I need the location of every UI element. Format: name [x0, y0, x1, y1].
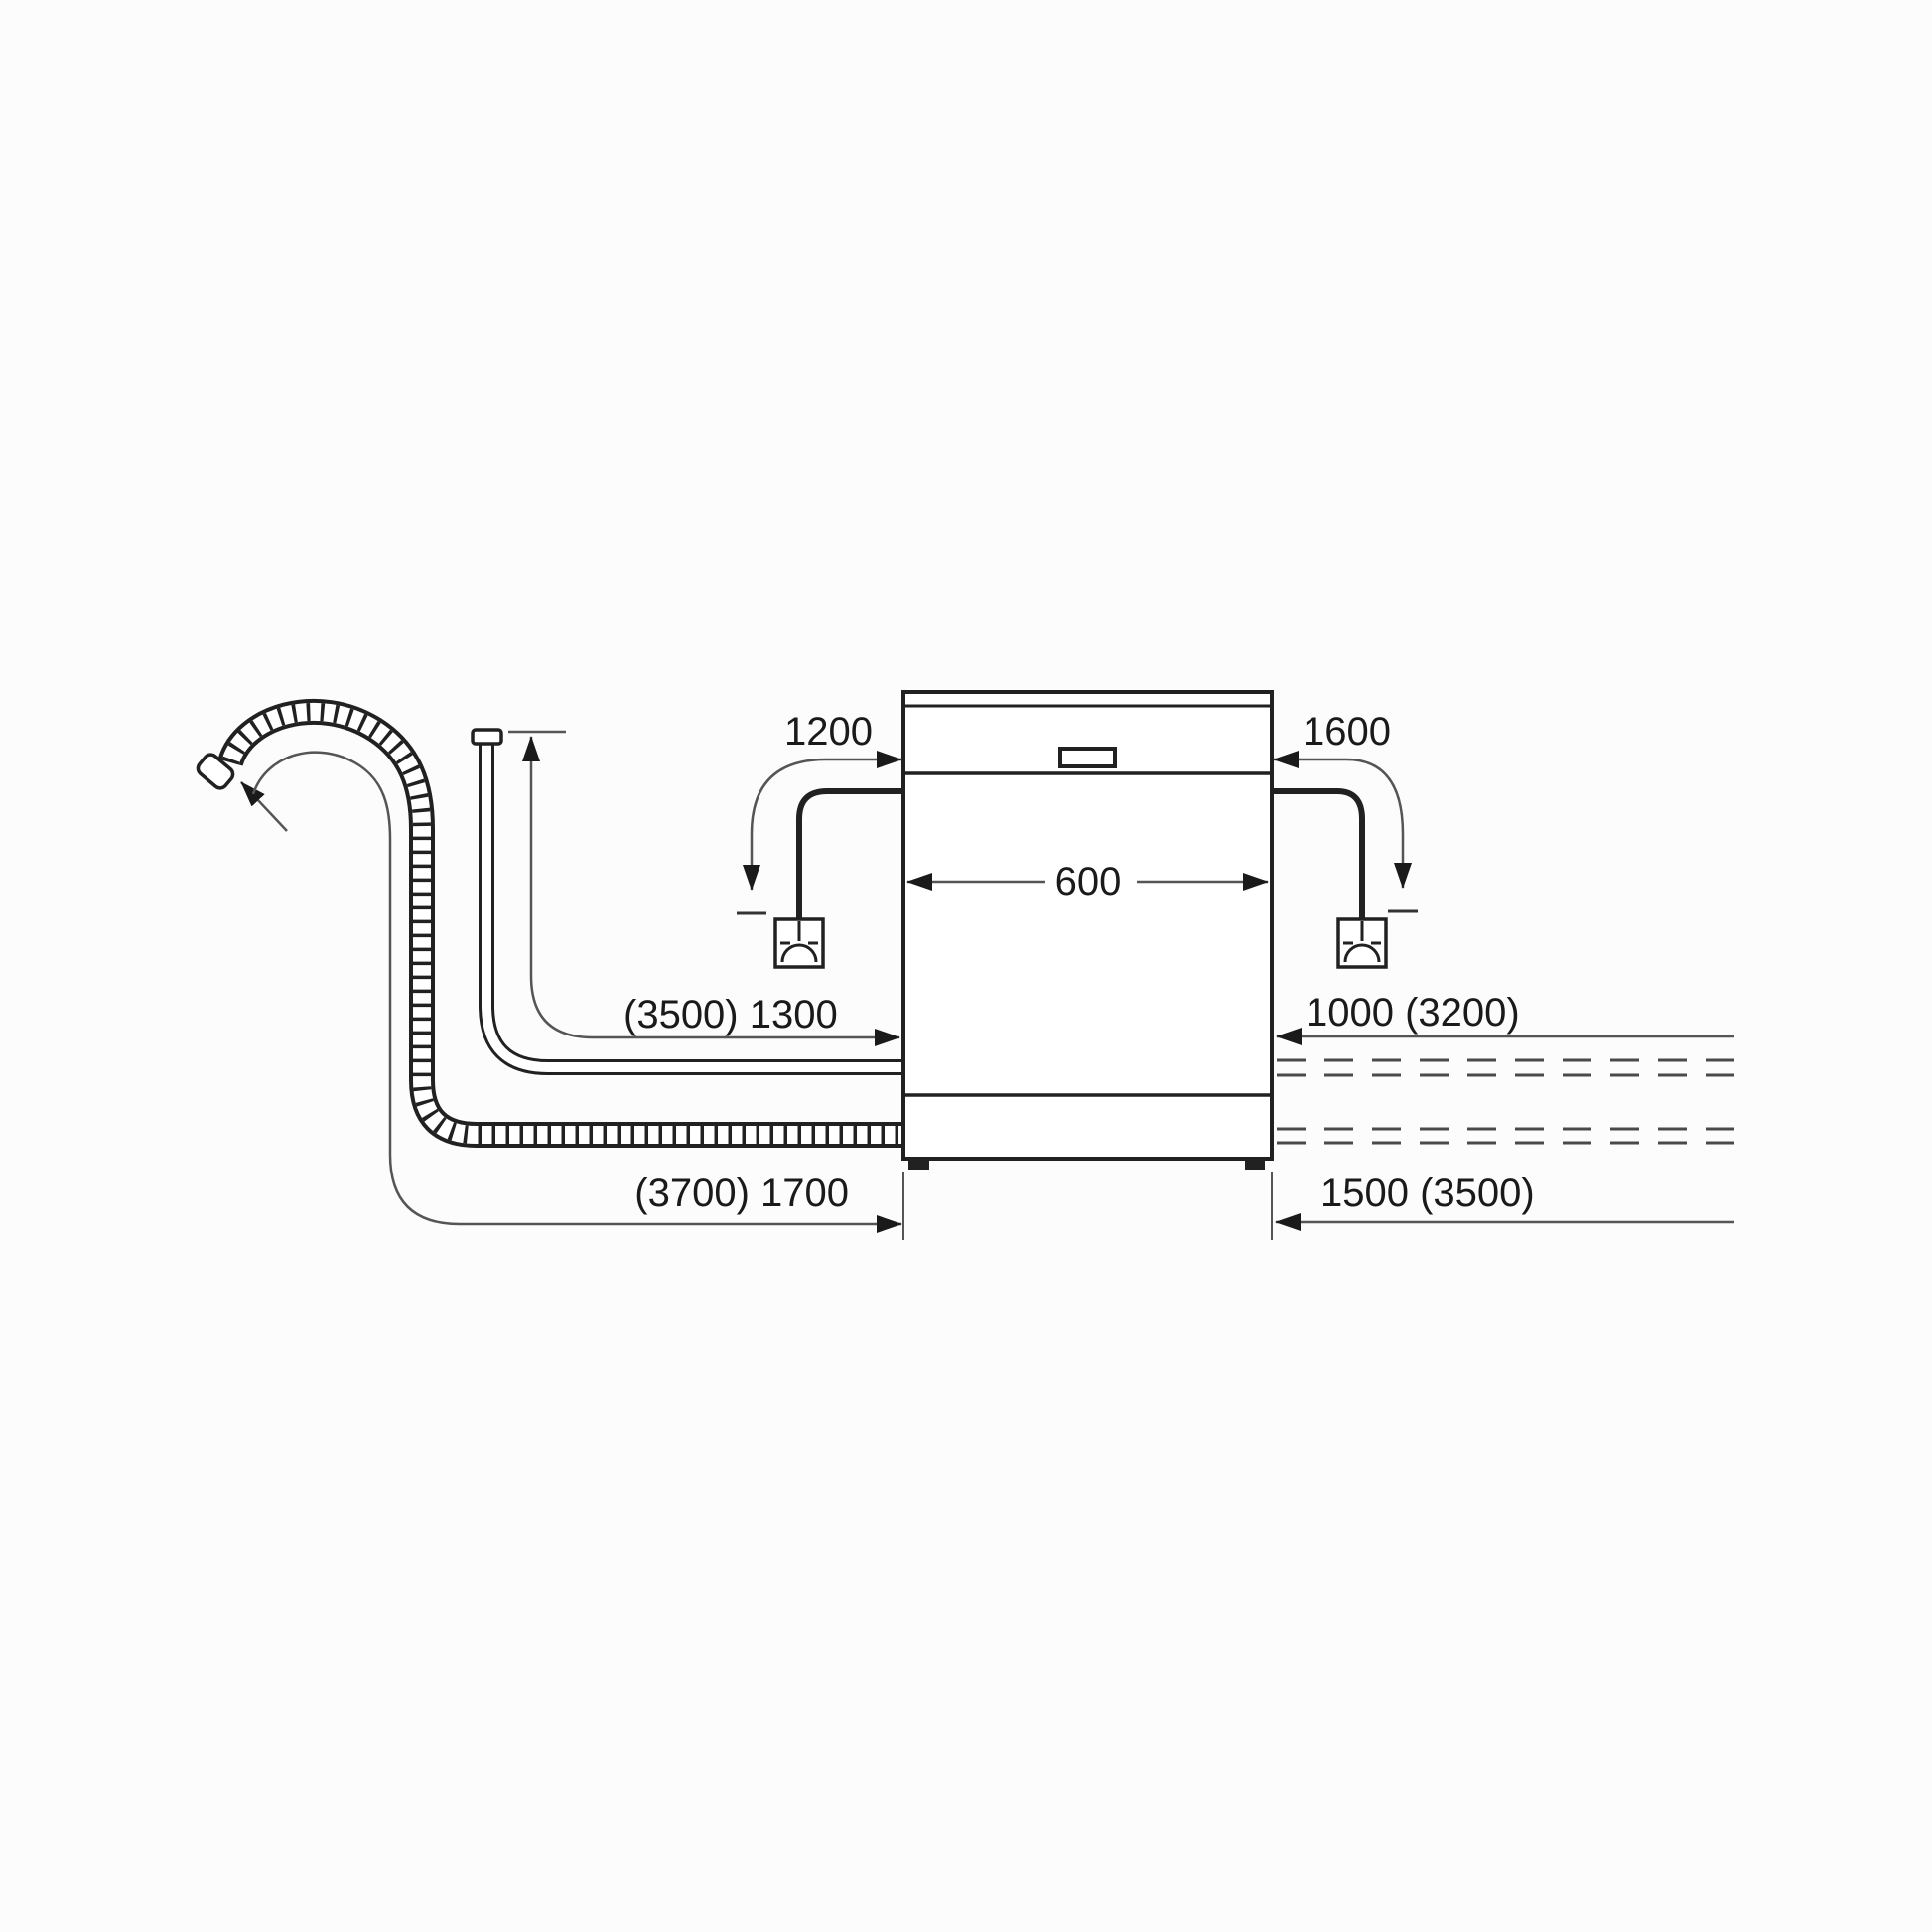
label-appliance-width: 600 [1055, 860, 1122, 903]
label-inlet-left: (3500) 1300 [623, 993, 838, 1036]
label-cord-right: 1600 [1303, 710, 1391, 754]
appliance-foot-right [1245, 1159, 1265, 1170]
power-socket-icon-right [1338, 919, 1386, 967]
appliance-outline [903, 692, 1272, 1170]
label-drain-right: 1500 (3500) [1320, 1172, 1535, 1215]
label-drain-left: (3700) 1700 [634, 1172, 849, 1215]
diagram-svg: 1200 1600 600 (3500) 1300 1000 (3200) (3… [0, 0, 1932, 1932]
supply-hose-connector [473, 730, 501, 744]
appliance-foot-left [908, 1159, 929, 1170]
installation-diagram: 1200 1600 600 (3500) 1300 1000 (3200) (3… [0, 0, 1932, 1932]
power-socket-icon-left [775, 919, 823, 967]
label-cord-left: 1200 [784, 710, 873, 754]
label-inlet-right: 1000 (3200) [1306, 991, 1520, 1035]
appliance-handle [1060, 749, 1115, 766]
